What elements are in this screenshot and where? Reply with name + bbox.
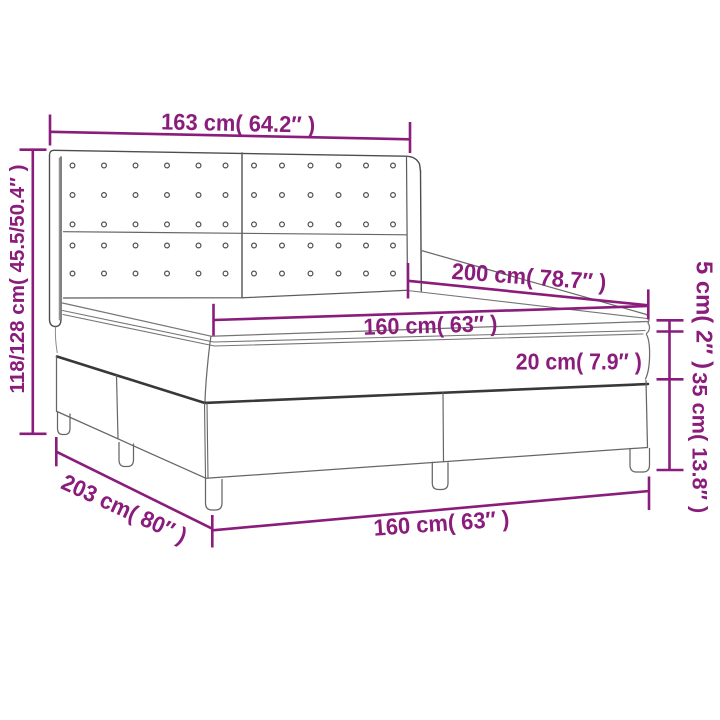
svg-text:200 cm( 78.7″ ): 200 cm( 78.7″ )	[451, 258, 607, 295]
svg-text:118/128 cm( 45.5/50.4″ ): 118/128 cm( 45.5/50.4″ )	[6, 165, 29, 394]
svg-text:163 cm( 64.2″ ): 163 cm( 64.2″ )	[161, 108, 316, 137]
svg-text:5 cm( 2″ ): 5 cm( 2″ )	[691, 261, 717, 369]
svg-text:160 cm( 63″ ): 160 cm( 63″ )	[373, 505, 510, 540]
svg-text:35 cm( 13.8″ ): 35 cm( 13.8″ )	[688, 372, 712, 513]
svg-text:160 cm( 63″ ): 160 cm( 63″ )	[363, 310, 498, 339]
svg-text:20 cm( 7.9″ ): 20 cm( 7.9″ )	[516, 349, 642, 375]
